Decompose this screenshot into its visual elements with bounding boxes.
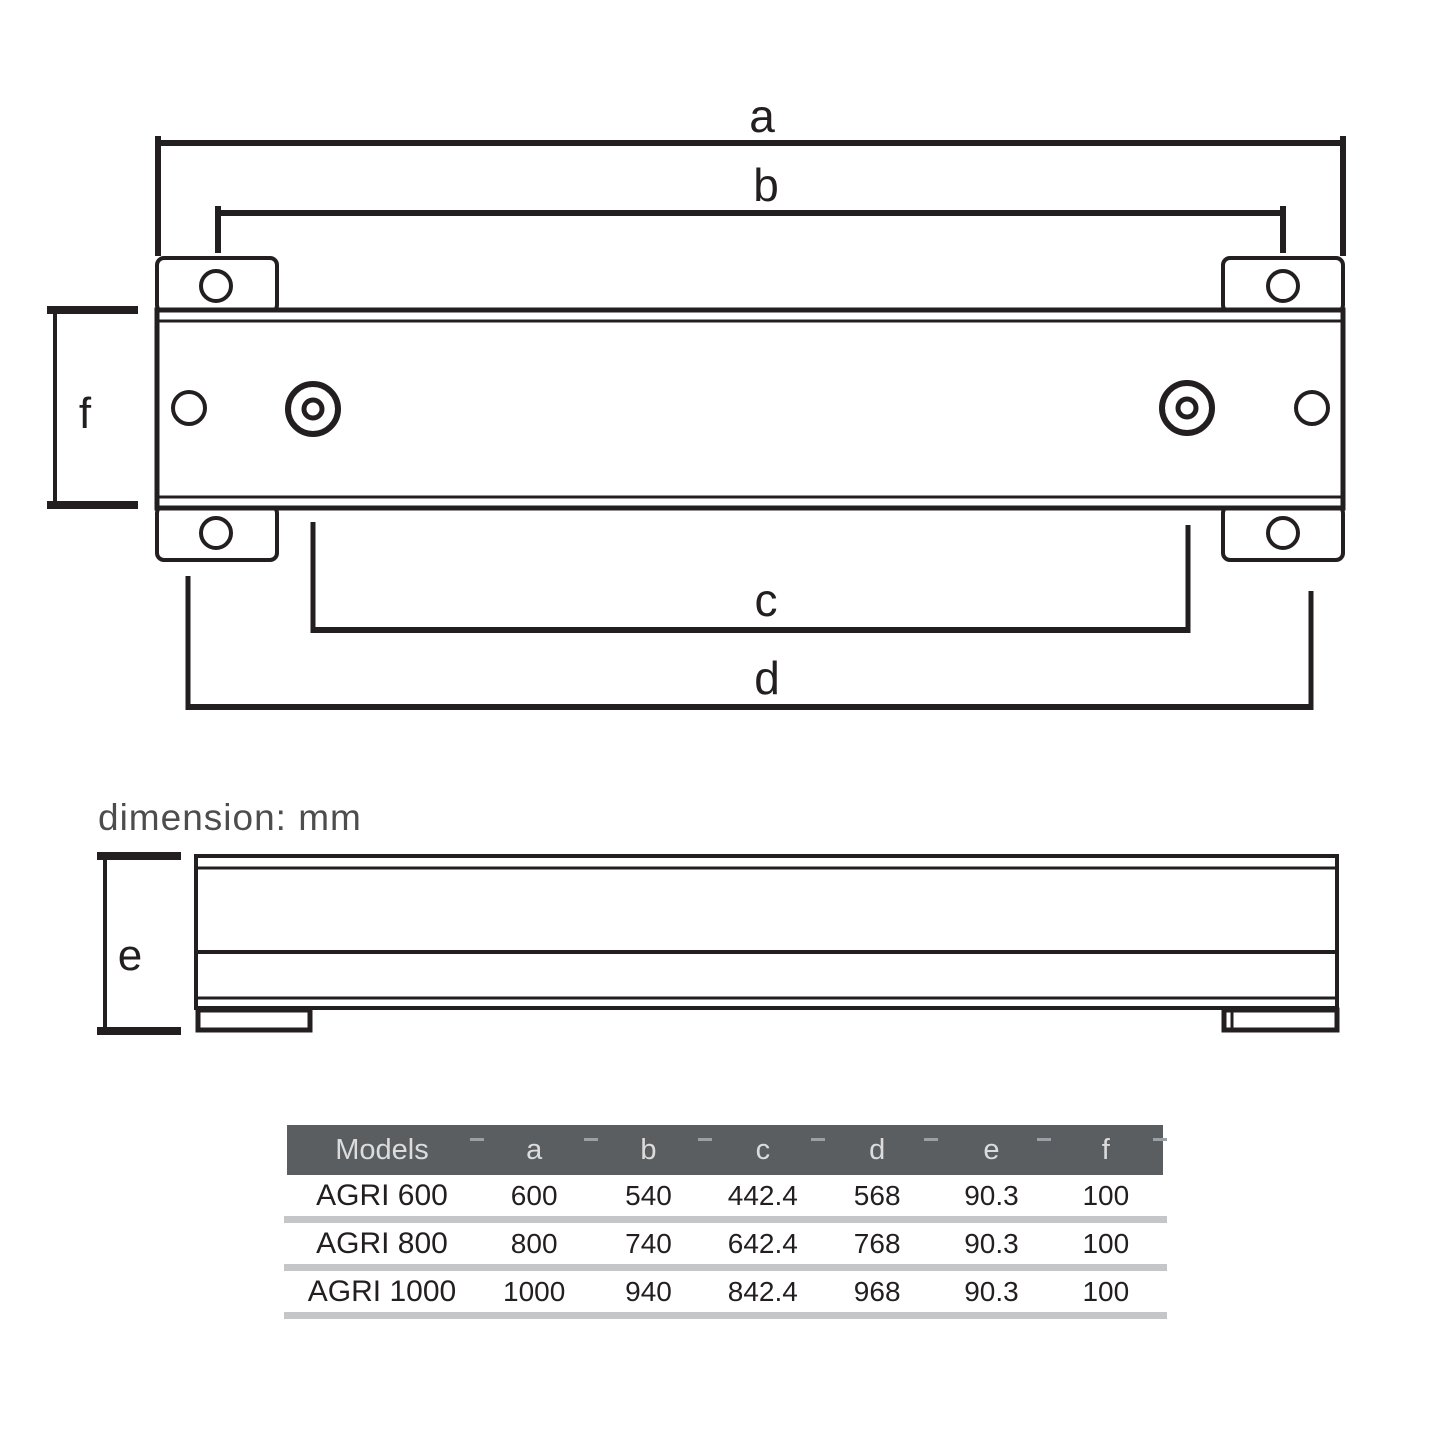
header-tick bbox=[1153, 1138, 1167, 1141]
dim-a-label: a bbox=[749, 90, 775, 142]
bar-body bbox=[157, 310, 1343, 508]
table-row: AGRI 1000 1000 940 842.4 968 90.3 100 bbox=[287, 1271, 1163, 1312]
header-tick bbox=[584, 1138, 598, 1141]
value-d: 568 bbox=[820, 1180, 934, 1212]
top-view: a b bbox=[47, 90, 1343, 710]
dim-e-label: e bbox=[118, 931, 142, 980]
value-b: 740 bbox=[591, 1228, 705, 1260]
spec-table: Models a b c d e f AGRI 600 600 540 442.… bbox=[287, 1125, 1163, 1319]
row-separator bbox=[284, 1264, 1167, 1271]
dim-f-label: f bbox=[79, 389, 92, 438]
tab-hole bbox=[1268, 271, 1298, 301]
header-b: b bbox=[591, 1134, 705, 1167]
table-row: AGRI 800 800 740 642.4 768 90.3 100 bbox=[287, 1223, 1163, 1264]
side-view: e bbox=[97, 856, 1337, 1031]
dimension-a: a bbox=[158, 90, 1343, 256]
mounting-tab-top-left bbox=[157, 258, 277, 312]
header-tick bbox=[924, 1138, 938, 1141]
value-c: 442.4 bbox=[706, 1180, 820, 1212]
model-name: AGRI 800 bbox=[287, 1227, 477, 1261]
value-c: 642.4 bbox=[706, 1228, 820, 1260]
model-name: AGRI 1000 bbox=[287, 1275, 477, 1309]
value-b: 940 bbox=[591, 1276, 705, 1308]
header-models: Models bbox=[287, 1134, 477, 1167]
table-row: AGRI 600 600 540 442.4 568 90.3 100 bbox=[287, 1175, 1163, 1216]
mounting-tab-bottom-right bbox=[1223, 506, 1343, 560]
header-tick bbox=[698, 1138, 712, 1141]
table-header-row: Models a b c d e f bbox=[287, 1125, 1163, 1175]
dim-d-label: d bbox=[754, 652, 780, 704]
profile-outline bbox=[196, 856, 1337, 1008]
dimension-unit-note: dimension: mm bbox=[98, 797, 362, 838]
value-a: 800 bbox=[477, 1228, 591, 1260]
header-tick bbox=[811, 1138, 825, 1141]
header-e: e bbox=[934, 1134, 1048, 1167]
dim-b-label: b bbox=[753, 159, 779, 211]
value-a: 1000 bbox=[477, 1276, 591, 1308]
value-f: 100 bbox=[1049, 1228, 1163, 1260]
row-separator bbox=[284, 1312, 1167, 1319]
tab-hole bbox=[201, 271, 231, 301]
mounting-tab-top-right bbox=[1223, 258, 1343, 312]
dimension-e: e bbox=[97, 856, 181, 1031]
header-a: a bbox=[477, 1134, 591, 1167]
dimension-d: d bbox=[188, 576, 1311, 710]
value-e: 90.3 bbox=[934, 1228, 1048, 1260]
mounting-tab-bottom-left bbox=[157, 506, 277, 560]
value-f: 100 bbox=[1049, 1276, 1163, 1308]
value-a: 600 bbox=[477, 1180, 591, 1212]
side-profile bbox=[196, 856, 1337, 1030]
foot-left bbox=[198, 1010, 310, 1030]
header-tick bbox=[470, 1138, 484, 1141]
value-f: 100 bbox=[1049, 1180, 1163, 1212]
header-tick bbox=[1037, 1138, 1051, 1141]
value-b: 540 bbox=[591, 1180, 705, 1212]
bar-outline bbox=[157, 310, 1343, 508]
dimension-c: c bbox=[313, 522, 1188, 633]
header-f: f bbox=[1049, 1134, 1163, 1167]
value-d: 768 bbox=[820, 1228, 934, 1260]
tab-hole bbox=[201, 518, 231, 548]
model-name: AGRI 600 bbox=[287, 1179, 477, 1213]
value-d: 968 bbox=[820, 1276, 934, 1308]
tab-hole bbox=[1268, 518, 1298, 548]
value-c: 842.4 bbox=[706, 1276, 820, 1308]
foot-right bbox=[1224, 1010, 1337, 1030]
dimension-f: f bbox=[47, 310, 138, 505]
value-e: 90.3 bbox=[934, 1180, 1048, 1212]
value-e: 90.3 bbox=[934, 1276, 1048, 1308]
page: a b bbox=[0, 0, 1445, 1445]
header-c: c bbox=[706, 1134, 820, 1167]
header-d: d bbox=[820, 1134, 934, 1167]
row-separator bbox=[284, 1216, 1167, 1223]
dimension-b: b bbox=[218, 159, 1283, 253]
dim-c-label: c bbox=[755, 574, 778, 626]
